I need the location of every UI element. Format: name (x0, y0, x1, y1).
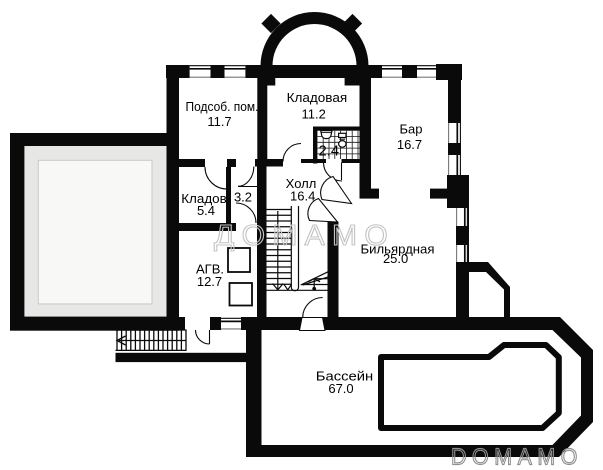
svg-text:Подсоб. пом.: Подсоб. пом. (186, 99, 259, 114)
svg-text:11.7: 11.7 (207, 114, 231, 129)
svg-text:16.7: 16.7 (397, 137, 422, 152)
svg-text:2.4: 2.4 (319, 142, 340, 159)
svg-text:3.2: 3.2 (234, 190, 252, 205)
svg-text:Бар: Бар (400, 122, 423, 137)
svg-text:25.0: 25.0 (383, 251, 408, 266)
svg-text:Кладовая: Кладовая (287, 90, 348, 105)
svg-text:12.7: 12.7 (197, 274, 222, 289)
svg-text:5.4: 5.4 (197, 203, 215, 218)
svg-text:DOMAMO: DOMAMO (451, 444, 583, 470)
svg-text:16.4: 16.4 (290, 189, 315, 204)
svg-text:ДОМАМО: ДОМАМО (214, 220, 395, 252)
svg-text:67.0: 67.0 (328, 381, 353, 396)
svg-text:11.2: 11.2 (302, 107, 326, 122)
